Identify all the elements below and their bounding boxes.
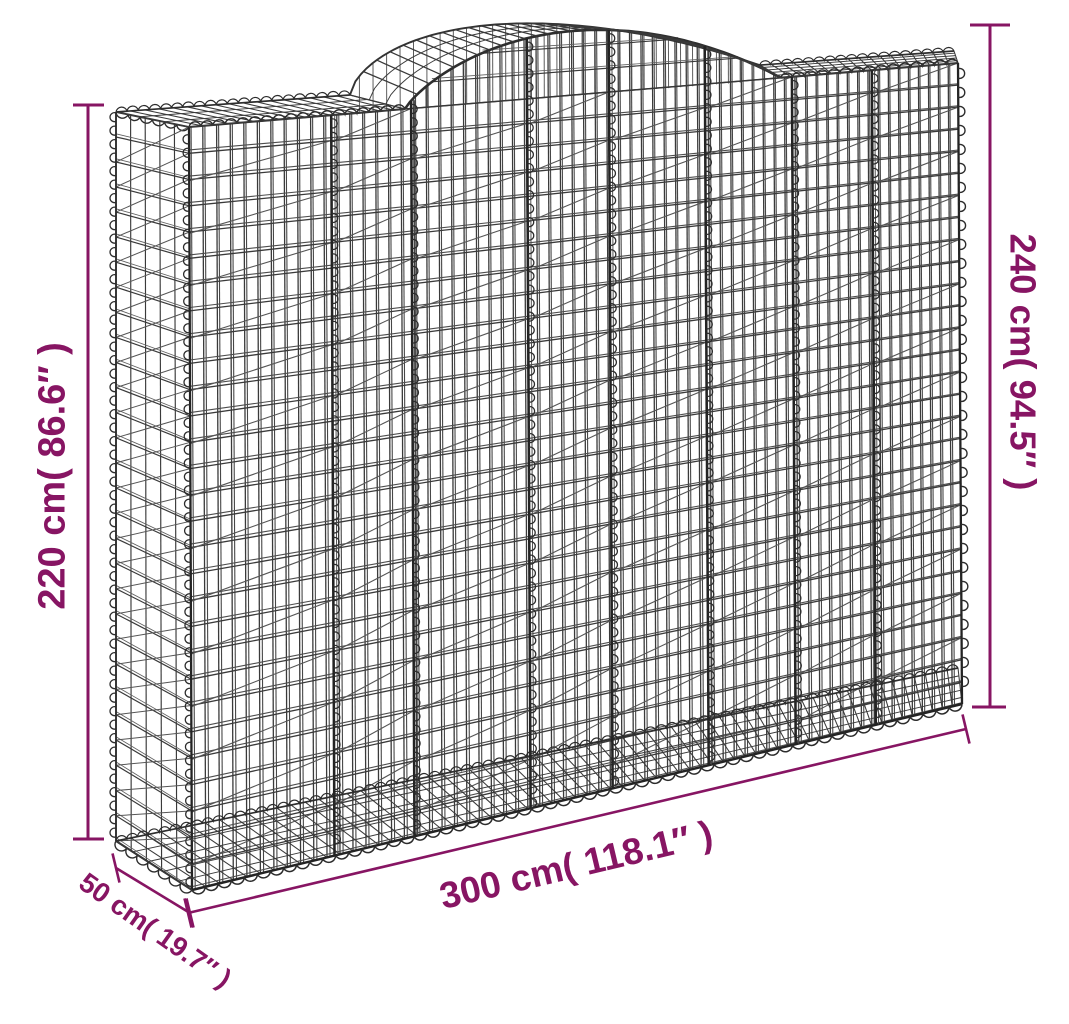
- svg-text:220 cm( 86.6″ ): 220 cm( 86.6″ ): [32, 342, 74, 609]
- svg-text:300 cm( 118.1″ ): 300 cm( 118.1″ ): [436, 813, 717, 917]
- svg-text:240 cm( 94.5″ ): 240 cm( 94.5″ ): [1003, 234, 1044, 491]
